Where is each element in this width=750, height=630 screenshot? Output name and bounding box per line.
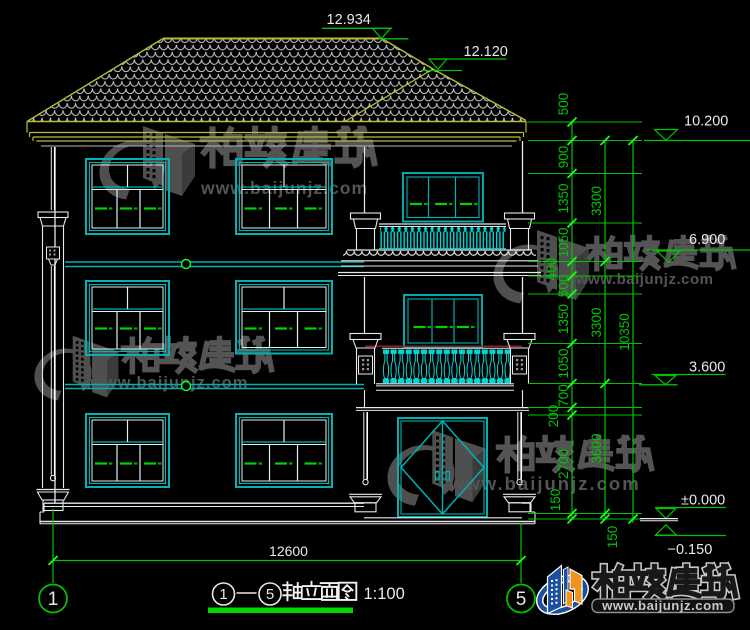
svg-text:700: 700 [556, 384, 571, 407]
svg-text:1350: 1350 [556, 183, 571, 213]
svg-text:900: 900 [556, 146, 571, 169]
svg-text:3300: 3300 [589, 307, 604, 337]
svg-text:1: 1 [219, 586, 227, 603]
svg-text:www.baijunjz.com: www.baijunjz.com [575, 271, 713, 288]
svg-text:2700: 2700 [556, 449, 571, 479]
svg-text:www.baijunjz.com: www.baijunjz.com [89, 374, 248, 392]
svg-text:1: 1 [48, 589, 59, 610]
svg-text:3600: 3600 [589, 433, 604, 463]
svg-text:www.baijunjz.com: www.baijunjz.com [601, 598, 724, 613]
svg-text:1050: 1050 [556, 227, 571, 257]
svg-text:150: 150 [548, 489, 563, 512]
svg-text:1350: 1350 [556, 304, 571, 334]
svg-text:500: 500 [556, 93, 571, 116]
svg-text:10350: 10350 [617, 313, 632, 351]
svg-text:500: 500 [556, 275, 571, 298]
svg-text:1050: 1050 [556, 348, 571, 378]
svg-text:10.200: 10.200 [684, 114, 728, 130]
svg-text:±0.000: ±0.000 [681, 493, 725, 509]
svg-text:5: 5 [266, 586, 274, 603]
svg-text:3300: 3300 [589, 186, 604, 216]
svg-text:150: 150 [605, 526, 620, 549]
svg-text:1:100: 1:100 [364, 585, 405, 603]
svg-text:200: 200 [546, 405, 561, 428]
svg-text:6.900: 6.900 [689, 232, 725, 248]
svg-text:3.600: 3.600 [689, 360, 725, 376]
svg-text:5: 5 [516, 589, 527, 610]
svg-text:12.934: 12.934 [327, 12, 371, 28]
svg-text:12600: 12600 [269, 543, 308, 559]
svg-text:12.120: 12.120 [464, 44, 508, 60]
svg-text:−0.150: −0.150 [668, 542, 713, 558]
